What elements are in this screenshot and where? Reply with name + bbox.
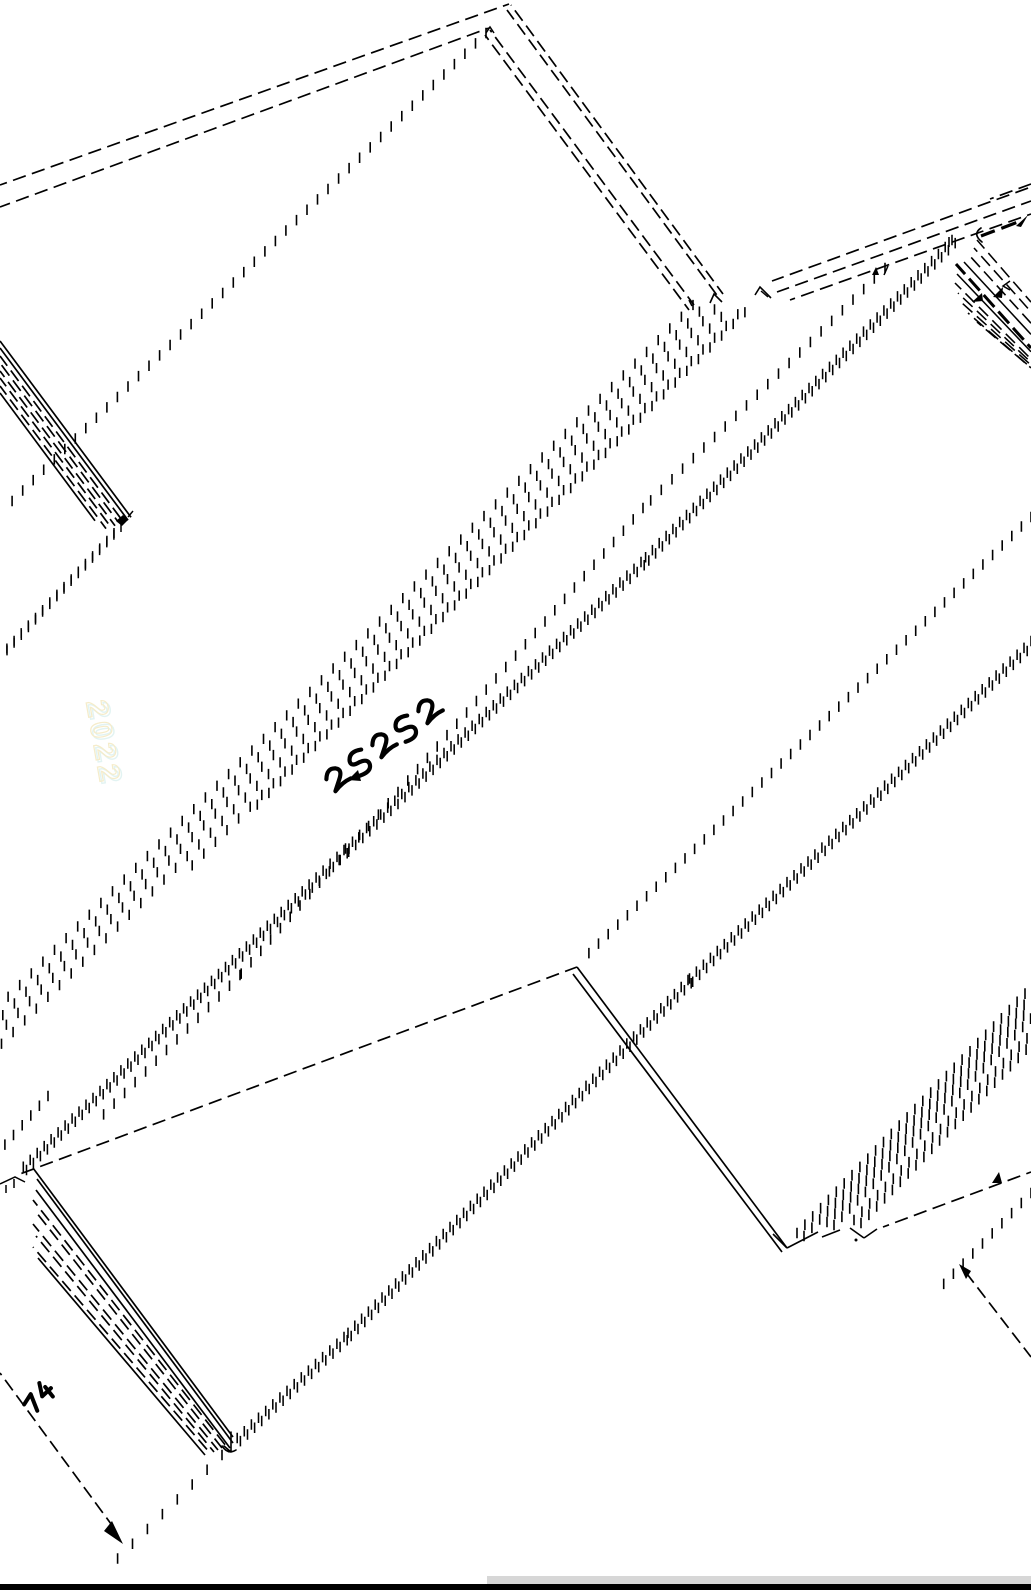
svg-text:2022: 2022: [79, 697, 127, 788]
